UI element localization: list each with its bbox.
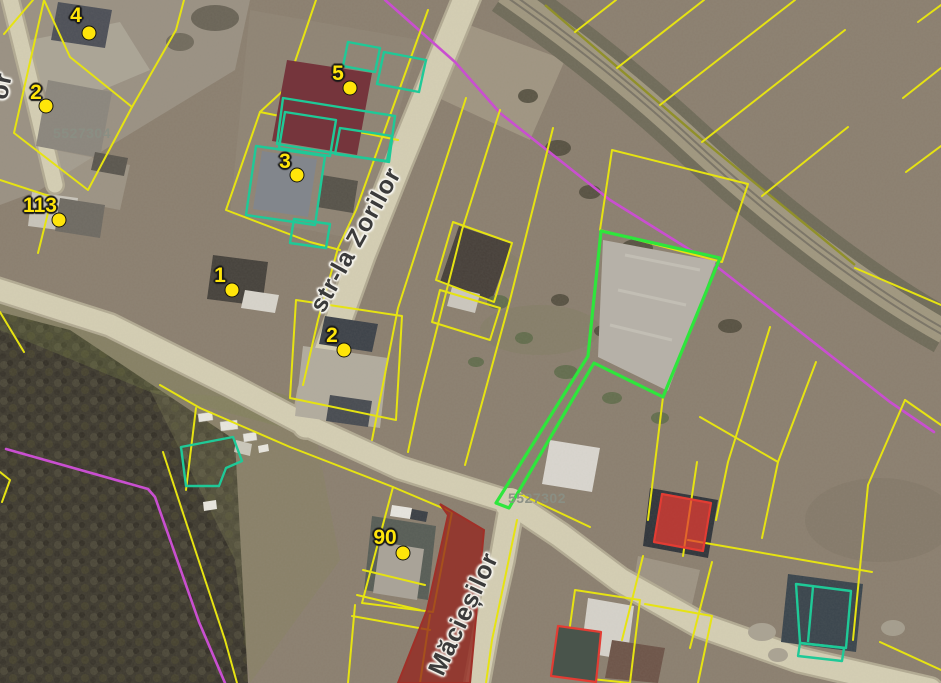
map-marker-dot[interactable] bbox=[396, 546, 411, 561]
highlighted-building[interactable] bbox=[654, 494, 711, 551]
map-marker-dot[interactable] bbox=[290, 168, 305, 183]
map-marker-label[interactable]: 90 bbox=[373, 526, 396, 550]
map-marker-dot[interactable] bbox=[39, 99, 54, 114]
map-marker-label[interactable]: 5 bbox=[332, 62, 344, 86]
cadastral-number-label: 5527302 bbox=[508, 490, 566, 506]
map-marker-label[interactable]: 2 bbox=[326, 324, 338, 348]
map-marker-dot[interactable] bbox=[343, 81, 358, 96]
map-marker-label[interactable]: 1 bbox=[214, 264, 226, 288]
map-canvas[interactable]: str-la Zorilor Măcieșilor or 5527304 552… bbox=[0, 0, 941, 683]
map-marker-dot[interactable] bbox=[225, 283, 240, 298]
map-marker-dot[interactable] bbox=[337, 343, 352, 358]
map-marker-label[interactable]: 4 bbox=[70, 4, 82, 28]
map-marker-label[interactable]: 113 bbox=[23, 194, 57, 218]
house-roof bbox=[272, 60, 372, 155]
map-marker-label[interactable]: 3 bbox=[279, 150, 291, 174]
highlighted-building[interactable] bbox=[551, 626, 601, 682]
cadastral-number-label: 5527304 bbox=[53, 125, 111, 141]
map-marker-dot[interactable] bbox=[82, 26, 97, 41]
map-marker-dot[interactable] bbox=[52, 213, 67, 228]
